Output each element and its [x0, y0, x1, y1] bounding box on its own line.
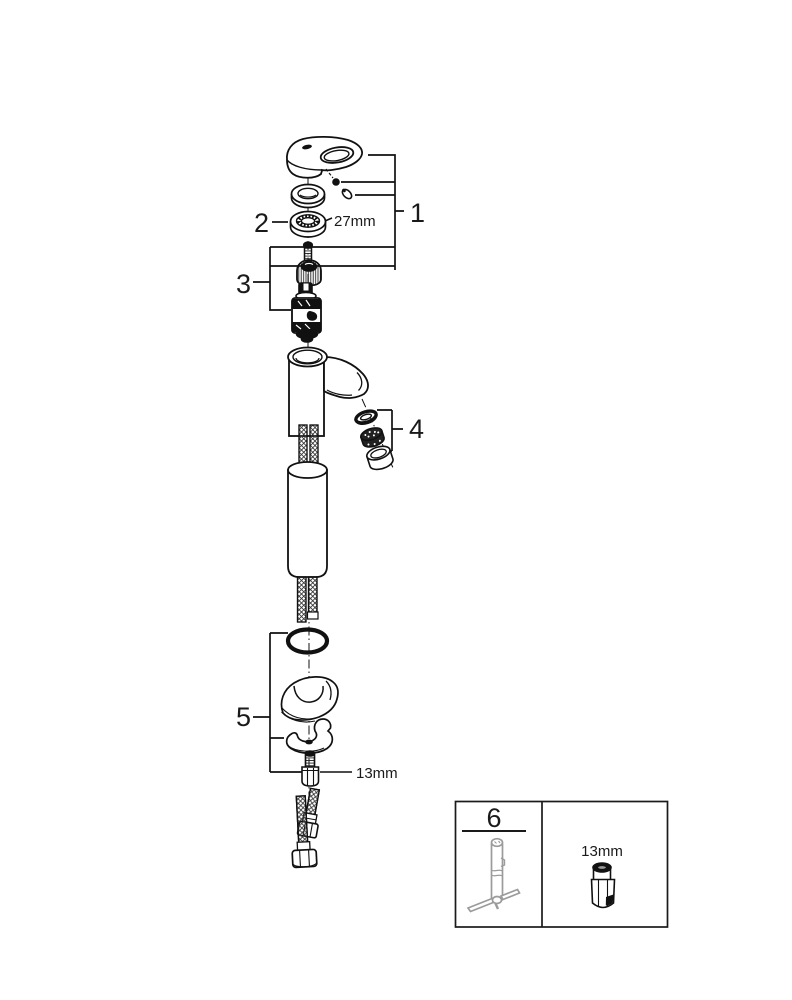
callout-bracket-3 [253, 247, 395, 310]
aerator-gasket [354, 409, 378, 427]
body-shank [288, 470, 327, 577]
callout-4-label: 4 [409, 414, 424, 444]
outlet-hoses [298, 577, 319, 622]
callout-1-label: 1 [410, 198, 425, 228]
socket-13mm [592, 863, 615, 908]
handle-plug-pin [341, 188, 354, 201]
aerator-shell [365, 444, 395, 472]
body-upper-column [289, 356, 324, 436]
o-ring [288, 630, 327, 653]
cartridge [292, 283, 321, 342]
parts-diagram-page: 1 2 3 4 5 6 27mm 13mm 13mm [0, 0, 792, 1000]
dim-13mm-label: 13mm [356, 765, 398, 782]
mounting-wedge [281, 677, 337, 722]
cartridge-screw [304, 242, 313, 261]
horseshoe-washer [287, 719, 333, 753]
escutcheon-ring-27mm [291, 212, 326, 238]
mounting-stud-13mm [302, 751, 319, 786]
handle-cap-ring [292, 185, 325, 208]
exploded-diagram: 1 2 3 4 5 6 27mm 13mm 13mm [0, 0, 792, 1000]
callout-5-label: 5 [236, 702, 251, 732]
callout-6-label: 6 [486, 803, 501, 833]
dome-cap-nut [297, 260, 321, 286]
dim-27mm-label: 27mm [334, 213, 376, 230]
legend-13mm-label: 13mm [581, 843, 623, 860]
callout-3-label: 3 [236, 269, 251, 299]
lever-handle [287, 137, 362, 178]
faucet-body [288, 348, 368, 578]
callout-2-label: 2 [254, 208, 269, 238]
handle-fixing-screw [332, 178, 340, 186]
body-shank-collar [288, 462, 327, 478]
